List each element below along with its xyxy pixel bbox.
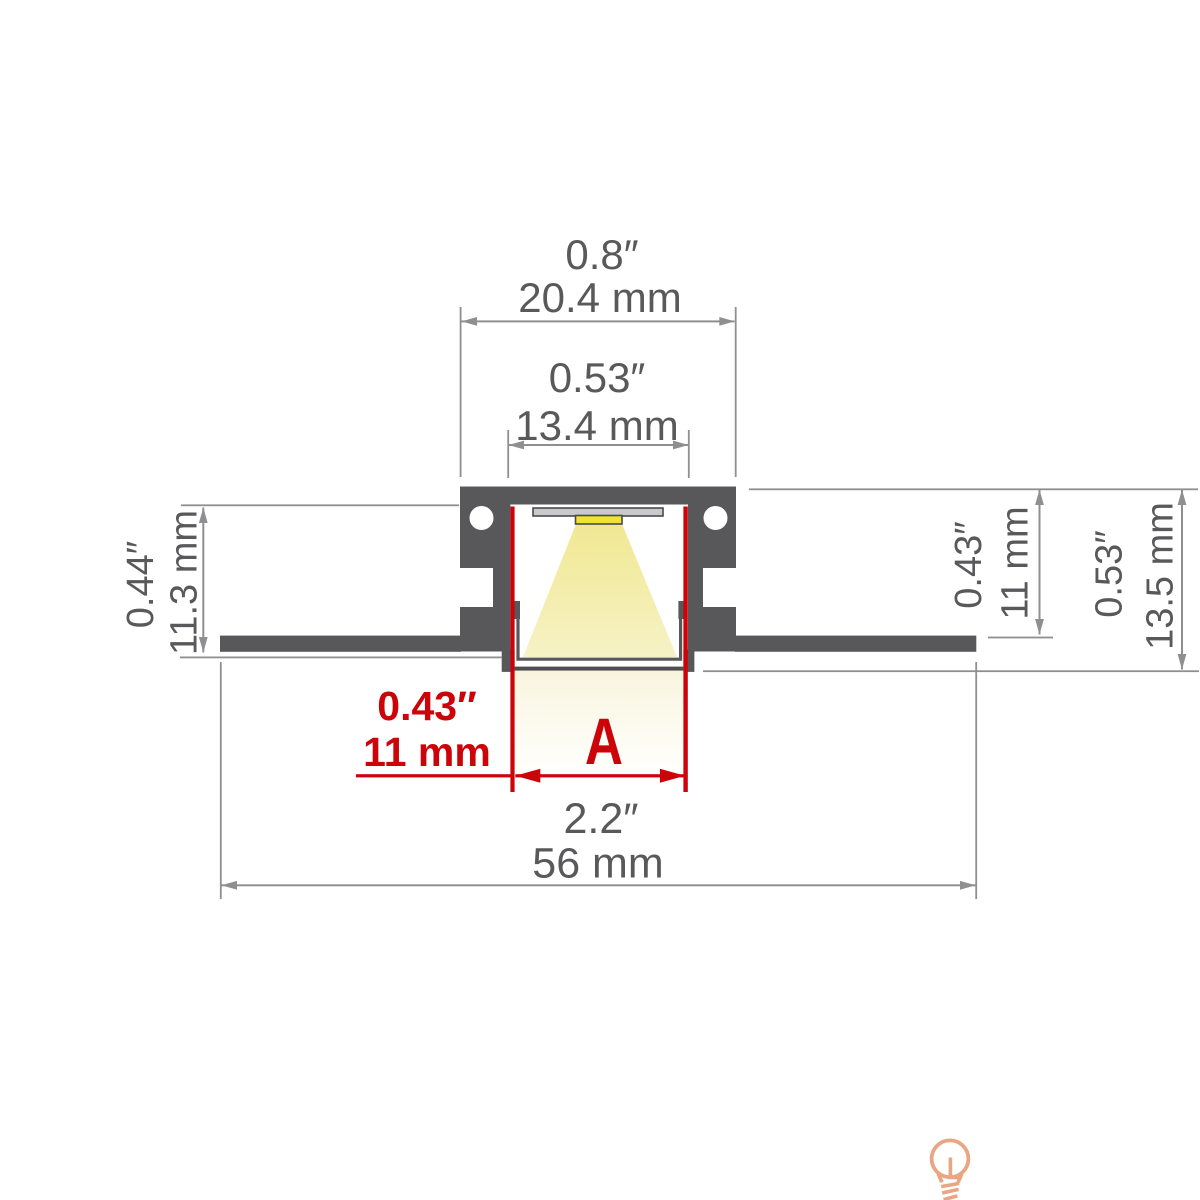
svg-text:0.43″: 0.43″ — [377, 683, 476, 729]
svg-text:A: A — [585, 704, 623, 778]
svg-text:11 mm: 11 mm — [995, 506, 1037, 619]
svg-text:0.43″: 0.43″ — [948, 521, 990, 608]
svg-text:0.44″: 0.44″ — [120, 541, 162, 628]
svg-text:11 mm: 11 mm — [363, 729, 491, 775]
svg-text:2.2″: 2.2″ — [564, 795, 639, 843]
svg-text:13.5 mm: 13.5 mm — [1140, 502, 1182, 650]
svg-text:56 mm: 56 mm — [532, 840, 663, 888]
svg-text:11.3 mm: 11.3 mm — [164, 510, 206, 655]
svg-text:0.8″: 0.8″ — [565, 231, 638, 278]
svg-text:0.53″: 0.53″ — [1089, 530, 1131, 617]
svg-text:20.4 mm: 20.4 mm — [518, 274, 681, 321]
svg-text:0.53″: 0.53″ — [549, 354, 646, 401]
svg-text:13.4 mm: 13.4 mm — [515, 402, 678, 449]
